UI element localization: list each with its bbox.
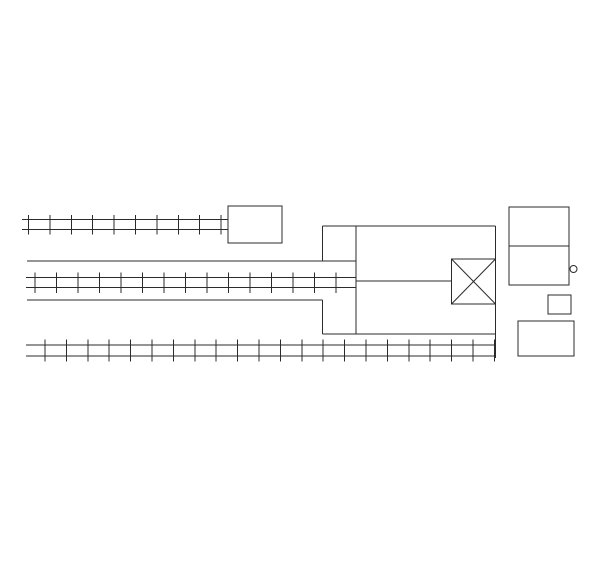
building-top <box>228 206 282 243</box>
diagram-svg <box>0 0 600 569</box>
building-small <box>548 295 571 314</box>
detail-circle <box>570 266 577 273</box>
diagram-canvas <box>0 0 600 569</box>
building-bottom-right <box>518 321 574 356</box>
